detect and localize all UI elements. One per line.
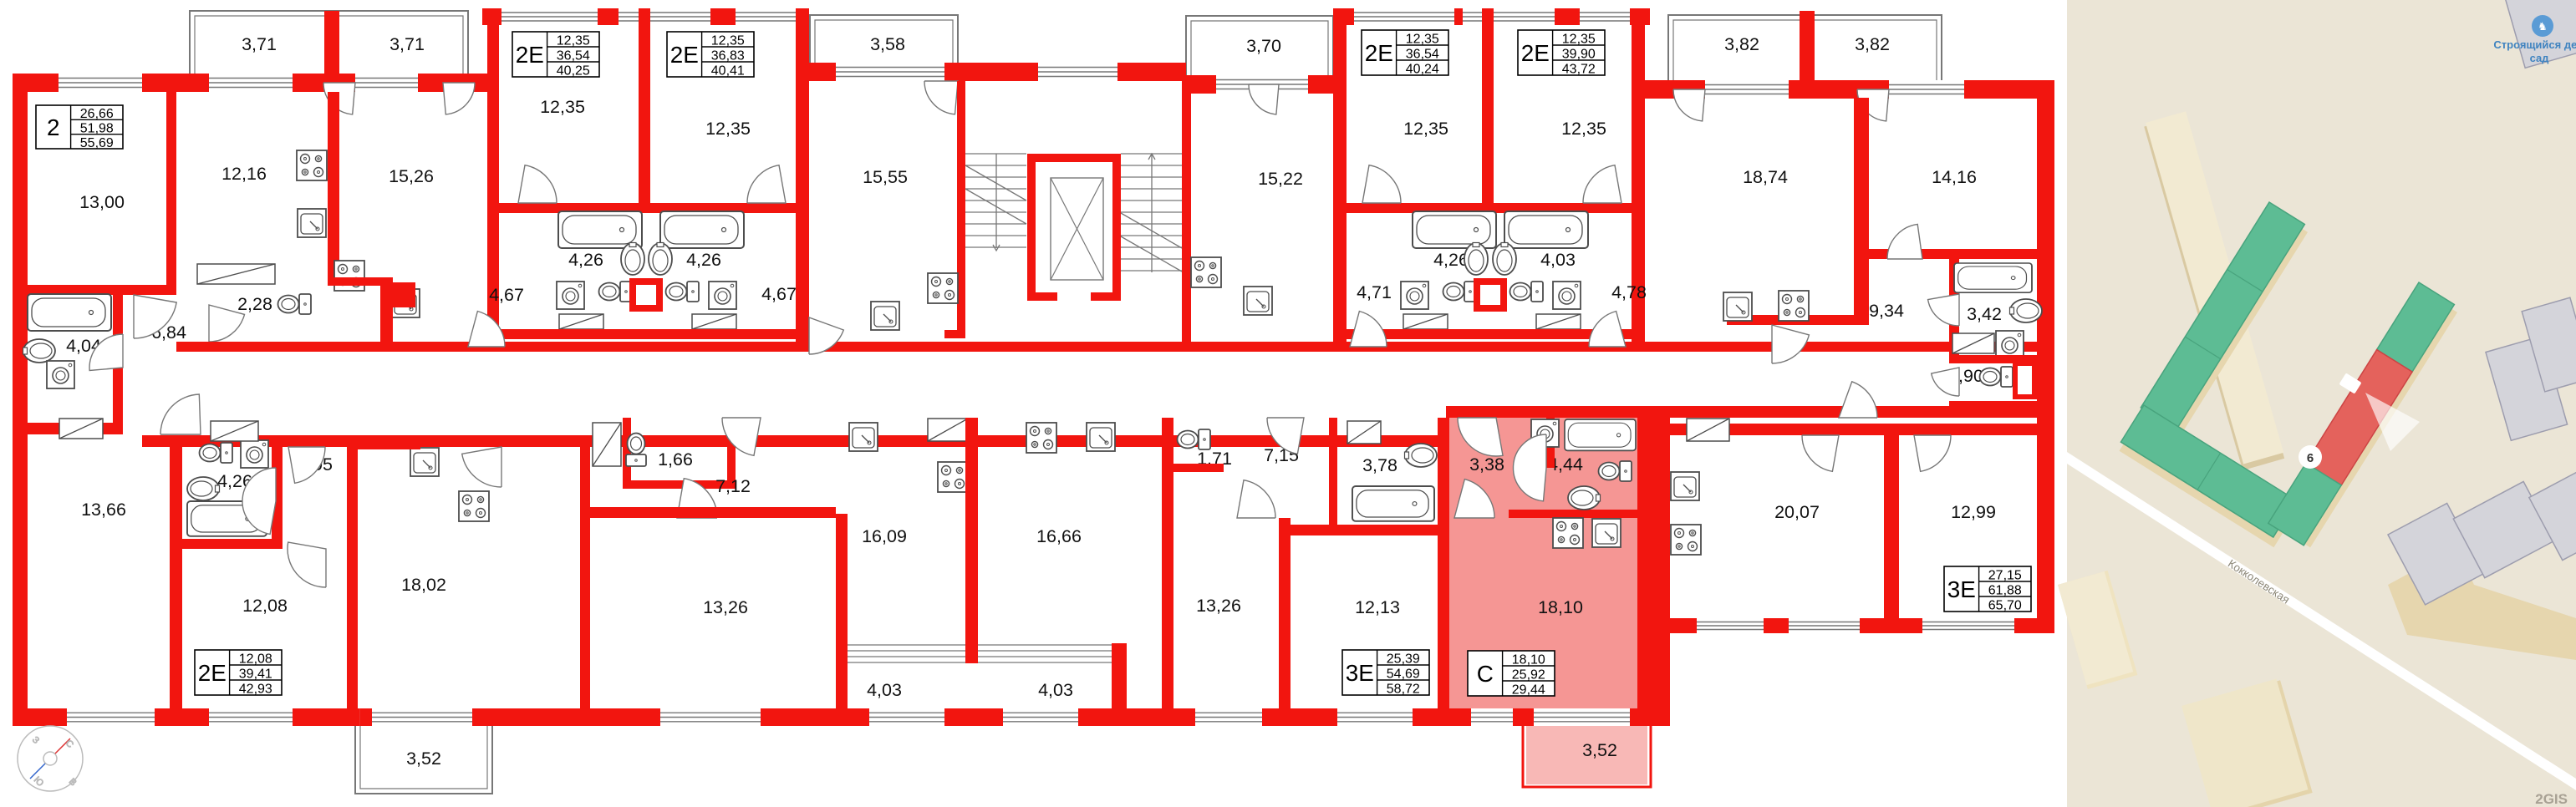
svg-text:40,24: 40,24 [1406, 63, 1439, 77]
svg-text:12,16: 12,16 [221, 164, 267, 184]
svg-text:С: С [1477, 661, 1494, 687]
svg-text:13,26: 13,26 [703, 597, 748, 617]
svg-text:сад: сад [2530, 52, 2550, 64]
svg-text:15,55: 15,55 [863, 167, 908, 187]
svg-text:16,66: 16,66 [1036, 526, 1082, 546]
svg-text:4,26: 4,26 [686, 250, 721, 270]
svg-text:2GIS: 2GIS [2535, 791, 2568, 807]
svg-text:4,67: 4,67 [761, 284, 797, 304]
svg-text:3,38: 3,38 [1469, 454, 1504, 475]
svg-text:3,78: 3,78 [1362, 455, 1397, 475]
svg-text:13,00: 13,00 [79, 192, 125, 212]
svg-text:3Е: 3Е [1947, 576, 1976, 602]
svg-text:2Е: 2Е [1521, 40, 1550, 66]
svg-text:20,07: 20,07 [1774, 502, 1820, 522]
svg-text:25,92: 25,92 [1512, 668, 1545, 683]
svg-text:3,42: 3,42 [1967, 304, 2002, 324]
svg-text:40,25: 40,25 [557, 64, 590, 79]
svg-text:29,44: 29,44 [1512, 683, 1545, 698]
svg-text:2,28: 2,28 [237, 294, 272, 314]
svg-text:25,39: 25,39 [1387, 652, 1420, 667]
svg-text:2Е: 2Е [1365, 40, 1393, 66]
svg-text:12,35: 12,35 [1406, 33, 1439, 47]
svg-text:4,26: 4,26 [568, 250, 603, 270]
svg-text:61,88: 61,88 [1988, 584, 2022, 598]
svg-text:3Е: 3Е [1346, 660, 1374, 686]
svg-text:4,03: 4,03 [867, 680, 902, 700]
svg-text:18,10: 18,10 [1538, 597, 1583, 617]
svg-text:3,52: 3,52 [406, 749, 441, 769]
svg-text:2Е: 2Е [670, 42, 699, 68]
svg-text:15,26: 15,26 [389, 166, 434, 186]
svg-text:27,15: 27,15 [1988, 569, 2022, 583]
svg-text:12,35: 12,35 [705, 119, 751, 139]
svg-text:54,69: 54,69 [1387, 667, 1420, 682]
svg-text:12,35: 12,35 [540, 97, 585, 117]
svg-text:2Е: 2Е [198, 660, 227, 686]
svg-text:36,54: 36,54 [1406, 48, 1439, 62]
svg-text:4,03: 4,03 [1540, 250, 1576, 270]
svg-text:13,26: 13,26 [1196, 596, 1241, 616]
svg-text:3,82: 3,82 [1855, 34, 1890, 54]
svg-text:3,58: 3,58 [870, 34, 905, 54]
svg-text:15,22: 15,22 [1258, 169, 1303, 189]
svg-text:4,03: 4,03 [1038, 680, 1073, 700]
svg-text:4,71: 4,71 [1357, 282, 1392, 302]
svg-text:18,74: 18,74 [1743, 167, 1788, 187]
svg-text:18,02: 18,02 [401, 575, 446, 595]
svg-text:3,71: 3,71 [389, 34, 425, 54]
svg-text:12,35: 12,35 [711, 34, 745, 48]
svg-text:65,70: 65,70 [1988, 599, 2022, 613]
svg-text:♞: ♞ [2538, 20, 2548, 33]
svg-text:14,16: 14,16 [1932, 167, 1977, 187]
svg-text:12,35: 12,35 [1562, 33, 1596, 47]
svg-text:12,99: 12,99 [1951, 502, 1996, 522]
svg-text:58,72: 58,72 [1387, 683, 1420, 697]
svg-text:43,72: 43,72 [1562, 63, 1596, 77]
svg-text:12,08: 12,08 [239, 652, 272, 667]
svg-text:26,66: 26,66 [80, 107, 114, 121]
svg-text:12,08: 12,08 [242, 596, 288, 616]
svg-text:4,78: 4,78 [1611, 282, 1647, 302]
svg-text:6: 6 [2307, 451, 2314, 465]
svg-text:42,93: 42,93 [239, 683, 272, 697]
svg-text:9,34: 9,34 [1869, 301, 1904, 321]
svg-text:3,52: 3,52 [1582, 740, 1617, 760]
svg-text:3,71: 3,71 [242, 34, 277, 54]
svg-text:Строящийся детс: Строящийся детс [2493, 38, 2576, 51]
svg-text:39,90: 39,90 [1562, 48, 1596, 62]
svg-text:7,12: 7,12 [715, 476, 751, 496]
svg-text:3,70: 3,70 [1246, 36, 1281, 56]
svg-text:36,54: 36,54 [557, 49, 590, 63]
svg-text:4,26: 4,26 [1433, 250, 1469, 270]
svg-text:18,10: 18,10 [1512, 653, 1545, 667]
svg-text:1,66: 1,66 [658, 449, 693, 469]
svg-text:2Е: 2Е [516, 42, 544, 68]
svg-text:39,41: 39,41 [239, 667, 272, 682]
svg-text:3,82: 3,82 [1724, 34, 1759, 54]
svg-text:12,35: 12,35 [557, 34, 590, 48]
svg-text:51,98: 51,98 [80, 122, 114, 136]
svg-text:2: 2 [47, 114, 60, 140]
svg-text:4,67: 4,67 [489, 285, 524, 305]
svg-text:55,69: 55,69 [80, 136, 114, 150]
svg-text:40,41: 40,41 [711, 64, 745, 79]
svg-text:12,35: 12,35 [1403, 119, 1448, 139]
svg-text:36,83: 36,83 [711, 49, 745, 63]
svg-text:13,66: 13,66 [81, 500, 126, 520]
svg-text:12,13: 12,13 [1355, 597, 1400, 617]
svg-text:16,09: 16,09 [862, 526, 907, 546]
svg-text:12,35: 12,35 [1561, 119, 1606, 139]
